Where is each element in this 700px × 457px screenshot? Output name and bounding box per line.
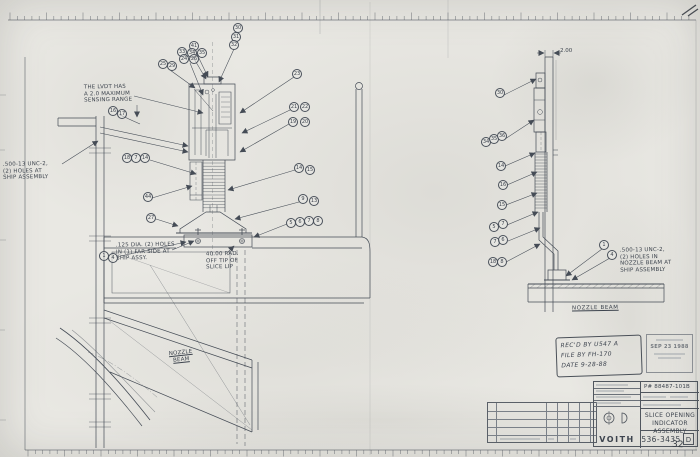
revision-table <box>487 402 597 443</box>
callout-14: 14 <box>294 163 304 173</box>
drawing-sheet: THE LVDT HAS A 2.0 MAXIMUM SENSING RANGE… <box>0 0 700 457</box>
callout-1: 1 <box>599 240 609 250</box>
lvdt-note: THE LVDT HAS A 2.0 MAXIMUM SENSING RANGE <box>84 83 142 104</box>
revision-letter: D <box>683 433 694 445</box>
page-number: 32 <box>672 440 684 451</box>
callout-24: 24 <box>179 54 189 64</box>
left-holes-note: .500-13 UNC-2, (2) HOLES AT SHIP ASSEMBL… <box>3 160 95 181</box>
callout-8: 8 <box>497 257 507 267</box>
callout-20: 20 <box>300 117 310 127</box>
stamp-line-3: DATE 9-28-88 <box>561 359 637 372</box>
callout-16: 16 <box>498 180 508 190</box>
callout-4: 4 <box>607 250 617 260</box>
date-stamp: SEP 23 1988 <box>646 334 693 373</box>
callout-7: 7 <box>498 219 508 229</box>
callout-23: 23 <box>292 69 302 79</box>
dimension-2-00: 2.00 <box>560 48 572 54</box>
drawing-title: SLICE OPENING INDICATOR ASSEMBLY <box>641 409 699 431</box>
received-stamp: REC'D BY U547 A FILE BY FH-170 DATE 9-28… <box>555 335 642 378</box>
callout-26: 26 <box>189 54 199 64</box>
callout-21: 21 <box>289 102 299 112</box>
callout-8: 8 <box>313 216 323 226</box>
title-block: P# 88487-101B SLICE OPENING INDICATOR AS… <box>593 381 698 447</box>
title-block-row2 <box>641 393 699 401</box>
callout-19: 19 <box>288 117 298 127</box>
callout-9: 9 <box>298 194 308 204</box>
callout-15: 15 <box>497 200 507 210</box>
company-logo: VOITH <box>594 431 641 448</box>
callout-14: 14 <box>140 153 150 163</box>
project-number: P# 88487-101B <box>641 382 699 393</box>
callout-4: 4 <box>108 253 118 263</box>
callout-29: 29 <box>167 61 177 71</box>
pen-mark <box>682 5 698 16</box>
right-holes-note: .500-13 UNC-2, (2) HOLES IN NOZZLE BEAM … <box>620 246 696 273</box>
callout-17: 17 <box>117 109 127 119</box>
callout-30: 30 <box>495 88 505 98</box>
callout-6: 6 <box>498 235 508 245</box>
radius-note: 40.00 RAD. OFF TIP OF SLICE LIP <box>206 251 254 271</box>
callout-15: 15 <box>305 165 315 175</box>
third-angle-projection-icon <box>602 411 632 425</box>
callout-14: 14 <box>496 161 506 171</box>
callout-27: 27 <box>146 213 156 223</box>
dia-holes-note: .125 DIA. (2) HOLES IN (1) FAR SIDE AT S… <box>116 241 184 262</box>
callout-44: 44 <box>143 192 153 202</box>
callout-36: 36 <box>497 131 507 141</box>
callout-32: 32 <box>229 40 239 50</box>
title-block-left-column <box>594 382 641 431</box>
nozzle-beam-label-right: NOZZLE BEAM <box>572 304 634 312</box>
callout-13: 13 <box>309 196 319 206</box>
callout-22: 22 <box>300 102 310 112</box>
title-block-row3 <box>641 401 699 409</box>
date-stamp-text: SEP 23 1988 <box>647 344 692 350</box>
